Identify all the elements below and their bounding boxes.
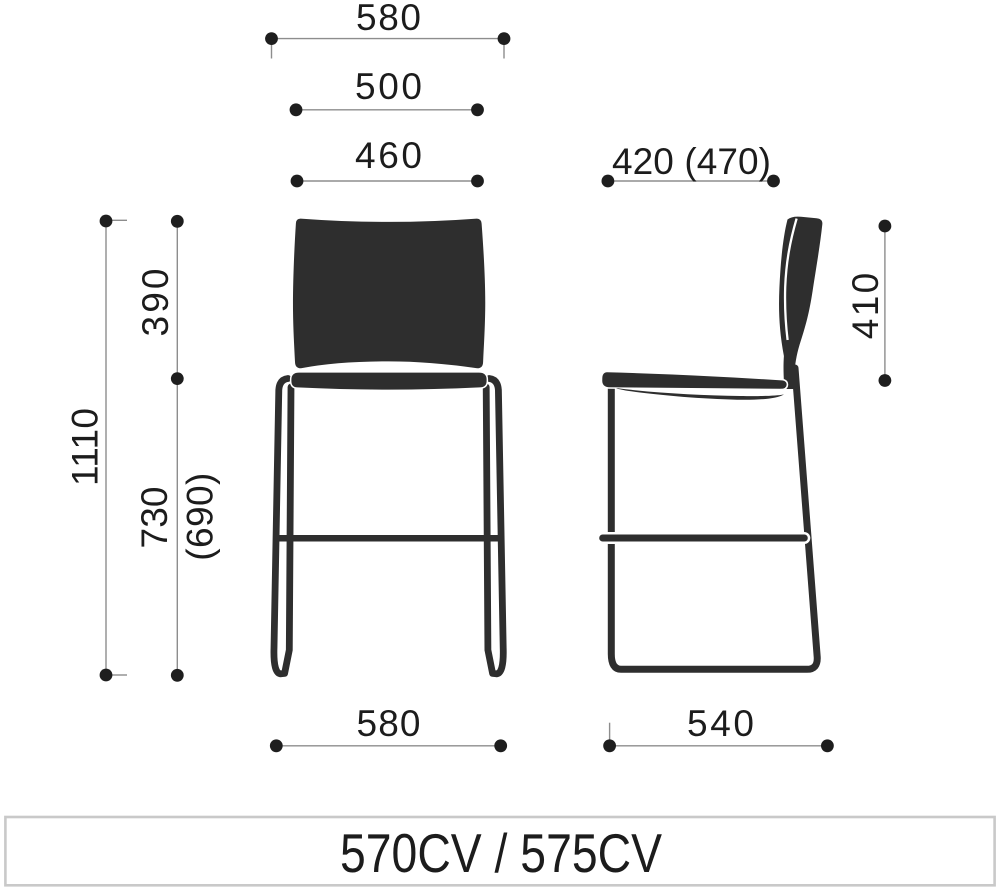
svg-text:730: 730 [134, 487, 175, 549]
svg-text:390: 390 [135, 269, 176, 337]
svg-text:1110: 1110 [65, 408, 106, 486]
svg-text:580: 580 [356, 0, 421, 38]
svg-text:420 (470): 420 (470) [612, 141, 771, 182]
svg-text:570CV / 575CV: 570CV / 575CV [340, 822, 662, 884]
svg-text:580: 580 [357, 703, 421, 744]
svg-text:460: 460 [355, 135, 422, 176]
svg-text:500: 500 [355, 66, 422, 107]
svg-text:410: 410 [845, 273, 886, 340]
svg-text:(690): (690) [180, 473, 221, 561]
svg-text:540: 540 [687, 703, 754, 744]
